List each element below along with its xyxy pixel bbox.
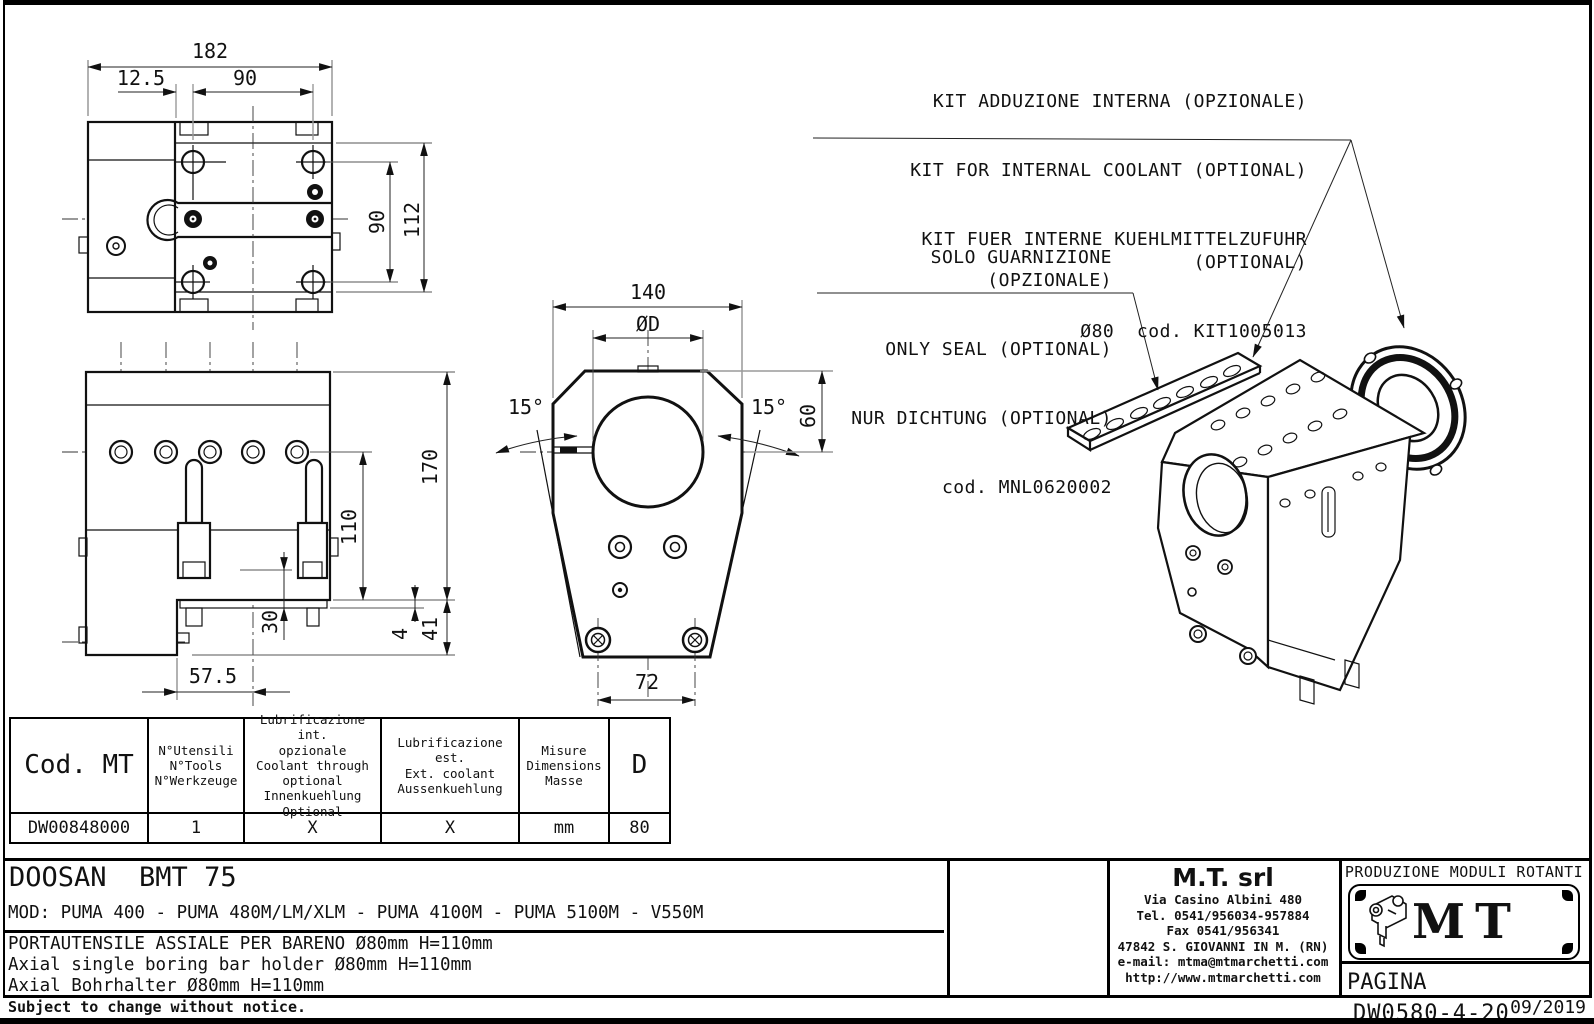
revision-date: 09/2019 bbox=[1510, 997, 1586, 1018]
dim-bore: ØD bbox=[636, 312, 660, 336]
seal-note-code: cod. MNL0620002 bbox=[800, 476, 1112, 499]
company-name: M.T. srl bbox=[1107, 863, 1339, 892]
machine-box: DOOSAN BMT 75 MOD: PUMA 400 - PUMA 480M/… bbox=[3, 861, 944, 933]
spec-row-d-value: 80 bbox=[610, 814, 669, 842]
spec-header-internal-coolant: Lubrificazione int. opzionale Coolant th… bbox=[245, 719, 382, 814]
kit-note-line-en: KIT FOR INTERNAL COOLANT (OPTIONAL) bbox=[800, 159, 1307, 182]
title-block: DOOSAN BMT 75 MOD: PUMA 400 - PUMA 480M/… bbox=[3, 858, 1589, 998]
page-row: PAGINA DW0580-4-20 bbox=[1339, 961, 1589, 1001]
front-view: 170 110 30 4 41 57.5 bbox=[62, 342, 455, 706]
mt-logo-text: MT bbox=[1412, 894, 1521, 950]
machine-model: DOOSAN BMT 75 bbox=[9, 862, 237, 893]
dim-90v: 90 bbox=[365, 210, 389, 234]
dim-angle-right: 15° bbox=[751, 395, 787, 419]
dim-182: 182 bbox=[192, 39, 228, 63]
dim-57-5: 57.5 bbox=[189, 664, 237, 688]
title-block-left: DOOSAN BMT 75 MOD: PUMA 400 - PUMA 480M/… bbox=[3, 861, 947, 998]
top-view: 182 12.5 90 90 112 bbox=[62, 39, 432, 330]
drawing-sheet: 182 12.5 90 90 112 bbox=[0, 0, 1594, 1024]
dim-41: 41 bbox=[418, 617, 442, 641]
dim-72: 72 bbox=[635, 670, 659, 694]
description-de: Axial Bohrhalter Ø80mm H=110mm bbox=[8, 976, 324, 996]
seal-note-line-de: NUR DICHTUNG (OPTIONAL) bbox=[800, 407, 1112, 430]
description-box: PORTAUTENSILE ASSIALE PER BARENO Ø80mm H… bbox=[3, 933, 944, 998]
dim-12-5: 12.5 bbox=[117, 66, 165, 90]
company-web: http://www.mtmarchetti.com bbox=[1107, 970, 1339, 986]
dim-110: 110 bbox=[337, 509, 361, 545]
divider bbox=[947, 861, 950, 998]
dim-90h: 90 bbox=[233, 66, 257, 90]
description-en: Axial single boring bar holder Ø80mm H=1… bbox=[8, 955, 472, 975]
logo-corner-dot bbox=[1562, 943, 1573, 954]
spec-table: Cod. MT N°Utensili N°Tools N°Werkzeuge L… bbox=[9, 717, 671, 844]
seal-note: SOLO GUARNIZIONE (OPZIONALE) ONLY SEAL (… bbox=[800, 200, 1112, 545]
page-label: PAGINA bbox=[1347, 970, 1426, 995]
spec-header-d: D bbox=[610, 719, 669, 814]
machine-mod-list: MOD: PUMA 400 - PUMA 480M/LM/XLM - PUMA … bbox=[8, 903, 703, 923]
spec-row-unit: mm bbox=[520, 814, 610, 842]
dim-4: 4 bbox=[388, 628, 412, 640]
bottom-bar bbox=[0, 1018, 1594, 1024]
spec-header-dimensions: Misure Dimensions Masse bbox=[520, 719, 610, 814]
spec-header-tools: N°Utensili N°Tools N°Werkzeuge bbox=[149, 719, 245, 814]
dim-30: 30 bbox=[258, 610, 282, 634]
spec-row-internal-coolant: X bbox=[245, 814, 382, 842]
mt-machine-icon bbox=[1362, 888, 1414, 954]
description-it: PORTAUTENSILE ASSIALE PER BARENO Ø80mm H… bbox=[8, 934, 493, 954]
spec-row-tools: 1 bbox=[149, 814, 245, 842]
spec-row-code: DW00848000 bbox=[11, 814, 149, 842]
company-email: e-mail: mtma@mtmarchetti.com bbox=[1107, 954, 1339, 970]
change-notice: Subject to change without notice. bbox=[8, 998, 306, 1016]
company-city: 47842 S. GIOVANNI IN M. (RN) bbox=[1107, 939, 1339, 955]
dim-170: 170 bbox=[418, 449, 442, 485]
kit-note-line-it: KIT ADDUZIONE INTERNA (OPZIONALE) bbox=[800, 90, 1307, 113]
section-view: 140 ØD 15° 15° 60 72 bbox=[496, 280, 833, 706]
company-tel: Tel. 0541/956034-957884 bbox=[1107, 908, 1339, 924]
company-fax: Fax 0541/956341 bbox=[1107, 923, 1339, 939]
spec-header-cod-mt: Cod. MT bbox=[11, 719, 149, 814]
production-caption: PRODUZIONE MODULI ROTANTI bbox=[1339, 863, 1589, 881]
company-address: Via Casino Albini 480 bbox=[1107, 892, 1339, 908]
holder-body-3d bbox=[1158, 360, 1424, 704]
dim-angle-left: 15° bbox=[508, 395, 544, 419]
spec-header-external-coolant: Lubrificazione est. Ext. coolant Aussenk… bbox=[382, 719, 520, 814]
spec-row-external-coolant: X bbox=[382, 814, 520, 842]
seal-note-line-it: SOLO GUARNIZIONE (OPZIONALE) bbox=[800, 246, 1112, 292]
company-block: M.T. srl Via Casino Albini 480 Tel. 0541… bbox=[1107, 861, 1339, 998]
mt-logo: MT bbox=[1348, 884, 1580, 960]
dim-140: 140 bbox=[630, 280, 666, 304]
title-block-right: PRODUZIONE MODULI ROTANTI bbox=[1339, 861, 1589, 998]
seal-note-line-en: ONLY SEAL (OPTIONAL) bbox=[800, 338, 1112, 361]
dim-112: 112 bbox=[400, 202, 424, 238]
logo-corner-dot bbox=[1562, 890, 1573, 901]
